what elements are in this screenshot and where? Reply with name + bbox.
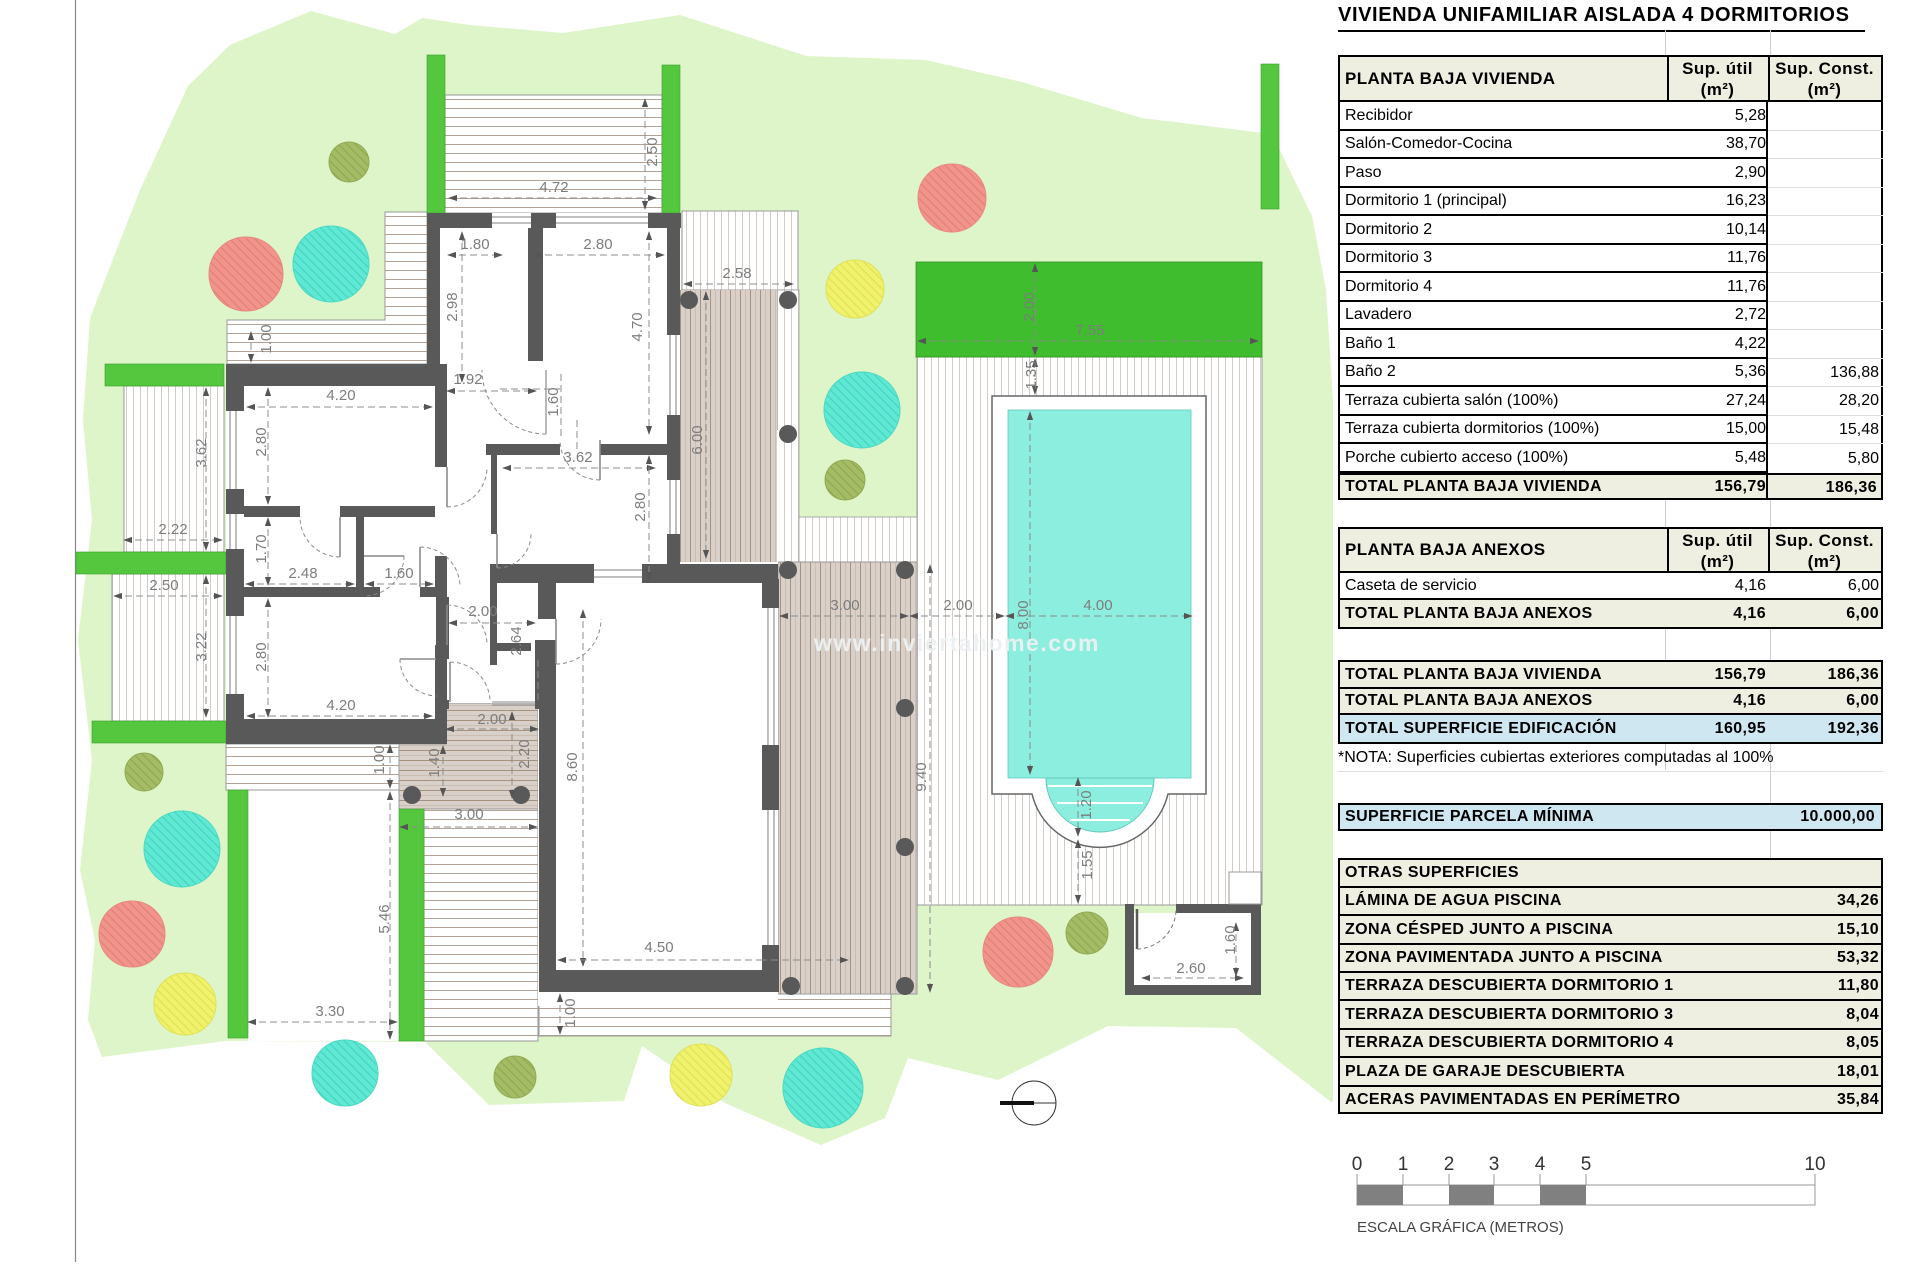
svg-text:3.30: 3.30 <box>315 1003 344 1020</box>
svg-text:1.60: 1.60 <box>1222 925 1239 954</box>
svg-text:4.20: 4.20 <box>326 697 355 714</box>
svg-text:2.00: 2.00 <box>468 603 497 620</box>
svg-text:0: 0 <box>1352 1154 1363 1175</box>
svg-text:ESCALA GRÁFICA (METROS): ESCALA GRÁFICA (METROS) <box>1357 1219 1564 1236</box>
svg-text:2.98: 2.98 <box>444 292 461 321</box>
svg-text:2.20: 2.20 <box>516 739 533 768</box>
svg-text:4.70: 4.70 <box>629 312 646 341</box>
svg-text:2.22: 2.22 <box>158 521 187 538</box>
svg-text:2.64: 2.64 <box>508 626 525 655</box>
svg-text:8.00: 8.00 <box>1015 600 1032 629</box>
svg-text:2.80: 2.80 <box>253 427 270 456</box>
svg-text:4.50: 4.50 <box>644 939 673 956</box>
svg-text:10: 10 <box>1804 1154 1825 1175</box>
svg-text:2.80: 2.80 <box>632 492 649 521</box>
svg-text:1.92: 1.92 <box>453 371 482 388</box>
svg-text:3.22: 3.22 <box>193 632 210 661</box>
svg-text:4.00: 4.00 <box>1083 597 1112 614</box>
svg-text:3.62: 3.62 <box>193 438 210 467</box>
svg-text:7.55: 7.55 <box>1075 322 1104 339</box>
svg-text:9.40: 9.40 <box>913 762 930 791</box>
svg-text:1.70: 1.70 <box>253 534 270 563</box>
svg-text:1.00: 1.00 <box>258 324 275 353</box>
svg-text:1.60: 1.60 <box>384 565 413 582</box>
svg-text:3.00: 3.00 <box>830 597 859 614</box>
svg-text:3.62: 3.62 <box>563 449 592 466</box>
svg-text:3: 3 <box>1489 1154 1500 1175</box>
svg-text:2.48: 2.48 <box>288 565 317 582</box>
svg-text:6.00: 6.00 <box>689 425 706 454</box>
svg-text:5: 5 <box>1581 1154 1592 1175</box>
svg-text:4.72: 4.72 <box>539 179 568 196</box>
svg-text:1.20: 1.20 <box>1078 790 1095 819</box>
svg-text:1.60: 1.60 <box>545 387 562 416</box>
svg-text:2.60: 2.60 <box>1176 960 1205 977</box>
svg-text:2.58: 2.58 <box>722 265 751 282</box>
svg-text:1.55: 1.55 <box>1079 850 1096 879</box>
svg-text:1.40: 1.40 <box>426 748 443 777</box>
svg-text:2.80: 2.80 <box>253 642 270 671</box>
svg-text:2.00: 2.00 <box>943 597 972 614</box>
svg-text:2.80: 2.80 <box>583 236 612 253</box>
svg-text:2.00: 2.00 <box>477 711 506 728</box>
svg-text:2: 2 <box>1444 1154 1455 1175</box>
svg-text:1.80: 1.80 <box>460 236 489 253</box>
svg-text:5.46: 5.46 <box>376 904 393 933</box>
svg-text:www.inviertahome.com: www.inviertahome.com <box>813 630 1100 656</box>
svg-text:8.60: 8.60 <box>564 752 581 781</box>
svg-text:4.20: 4.20 <box>326 387 355 404</box>
svg-text:1.35: 1.35 <box>1023 360 1040 389</box>
svg-text:2.50: 2.50 <box>644 137 661 166</box>
svg-text:4: 4 <box>1535 1154 1546 1175</box>
svg-text:1: 1 <box>1398 1154 1409 1175</box>
svg-text:1.00: 1.00 <box>371 745 388 774</box>
svg-text:1.00: 1.00 <box>562 998 579 1027</box>
svg-text:2.00: 2.00 <box>1021 292 1038 321</box>
svg-text:3.00: 3.00 <box>454 806 483 823</box>
svg-text:2.50: 2.50 <box>149 577 178 594</box>
